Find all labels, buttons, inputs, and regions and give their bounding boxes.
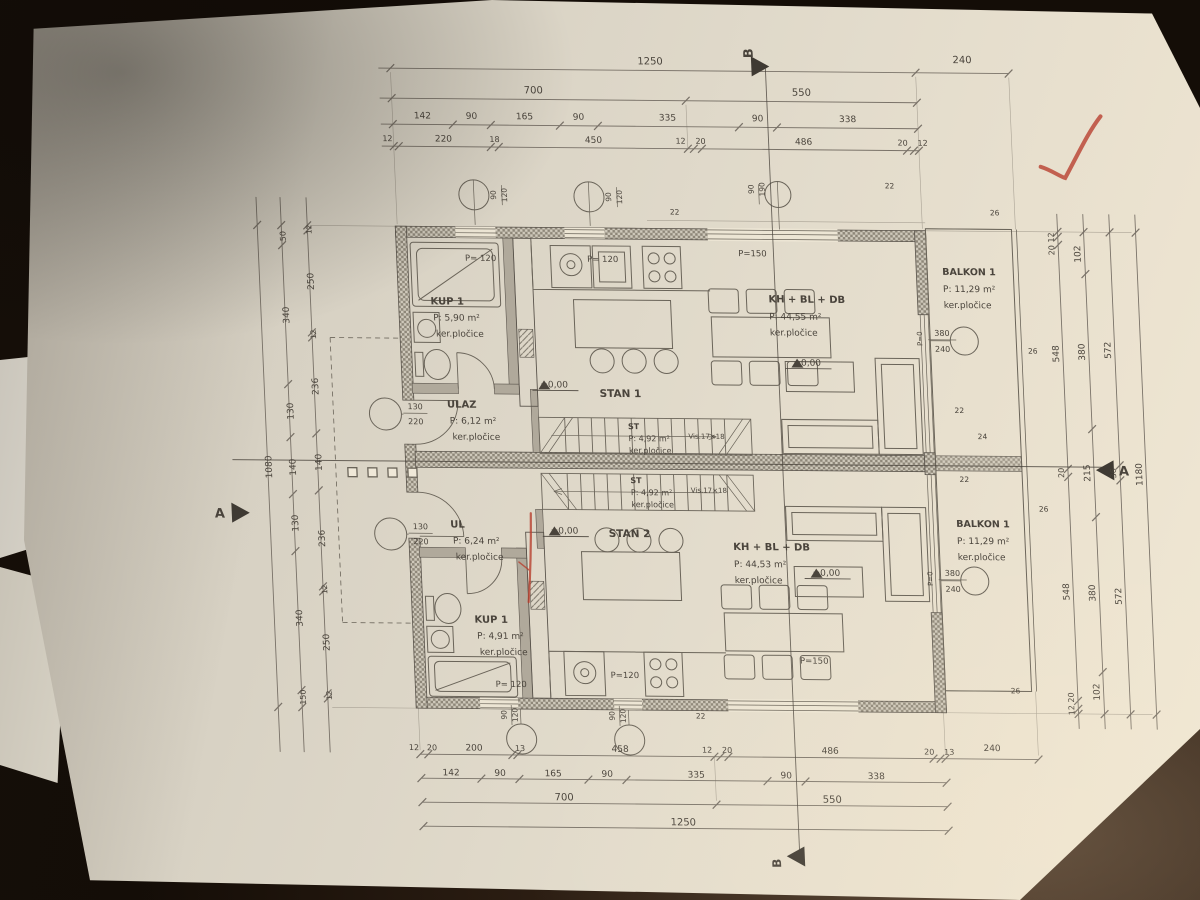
annotation-86: 90 <box>607 711 616 721</box>
annotation-63: 12 <box>325 690 334 700</box>
annotation-43: 20 <box>1057 468 1066 478</box>
annotation-120: ker.pločice <box>943 300 992 311</box>
annotation-72: P= 120 <box>465 254 497 264</box>
annotation-91: 220 <box>413 537 429 546</box>
annotation-37: 338 <box>868 772 886 782</box>
annotation-114: STAN 1 <box>599 388 641 400</box>
annotation-109: P: 5,90 m² <box>433 313 480 323</box>
annotation-78: 90 <box>489 190 498 200</box>
annotation-127: ker.pločice <box>631 499 674 509</box>
annotation-76: P=120 <box>610 671 639 681</box>
annotation-51: 572 <box>1103 342 1114 359</box>
annotation-22: 200 <box>465 744 483 754</box>
floor-plan-drawing: 1250240700550142901659033590338122201845… <box>0 0 1200 900</box>
annotation-133: KH + BL + DB <box>733 542 810 554</box>
annotation-98: 22 <box>670 208 680 217</box>
annotation-6: 165 <box>516 112 534 122</box>
annotation-79: 120 <box>500 188 510 203</box>
annotation-66: 130 <box>286 402 297 420</box>
annotation-3: 550 <box>792 88 812 99</box>
annotation-117: ker.pločice <box>770 327 819 338</box>
annotation-50: 102 <box>1092 683 1103 700</box>
annotation-57: 12 <box>309 329 318 339</box>
annotation-55: 12 <box>304 224 313 234</box>
annotation-64: 50 <box>278 231 287 241</box>
annotation-104: 22 <box>959 475 969 484</box>
annotation-92: 380 <box>934 329 950 338</box>
annotation-0: 1250 <box>637 56 663 67</box>
annotation-84: 90 <box>499 710 508 720</box>
annotation-140: P: 11,29 m² <box>957 537 1010 547</box>
annotation-80: 90 <box>604 192 613 202</box>
annotation-107: 26 <box>1011 686 1021 695</box>
annotation-143: ±0,00 <box>793 359 821 369</box>
annotation-144: ±0,00 <box>551 526 579 536</box>
annotation-14: 450 <box>585 136 603 146</box>
annotation-88: 130 <box>407 402 423 411</box>
annotation-56: 250 <box>306 272 317 290</box>
annotation-12: 220 <box>435 135 453 145</box>
annotation-123: ker.pločice <box>629 445 672 455</box>
annotation-47: 380 <box>1077 343 1088 361</box>
annotation-58: 236 <box>311 377 322 395</box>
annotation-61: 12 <box>320 584 329 594</box>
annotation-59: 140 <box>314 453 325 471</box>
annotation-73: P= 120 <box>587 255 619 265</box>
annotation-48: 215 <box>1083 464 1094 481</box>
annotation-119: P: 11,29 m² <box>943 285 996 295</box>
annotation-99: 22 <box>885 181 895 190</box>
annotation-7: 90 <box>573 113 585 123</box>
annotation-53: 572 <box>1114 588 1125 605</box>
annotation-115: KH + BL + DB <box>768 294 845 306</box>
annotation-9: 90 <box>752 114 764 124</box>
annotation-85: 120 <box>510 708 520 723</box>
annotation-24: 458 <box>611 745 629 755</box>
annotation-16: 20 <box>695 137 706 146</box>
annotation-28: 20 <box>924 748 935 757</box>
annotation-39: 550 <box>823 795 843 806</box>
annotation-34: 90 <box>601 770 613 780</box>
annotation-137: P: 4,91 m² <box>477 632 524 642</box>
annotation-77: P=150 <box>800 656 829 666</box>
annotation-116: P: 44,55 m² <box>769 312 822 322</box>
annotation-18: 20 <box>897 139 908 148</box>
annotation-62: 250 <box>322 633 333 651</box>
photo-scene: 1250240700550142901659033590338122201845… <box>0 0 1200 900</box>
annotation-4: 142 <box>414 111 432 121</box>
annotation-40: 1250 <box>670 817 696 828</box>
annotation-90: 130 <box>413 522 429 531</box>
annotation-89: 220 <box>408 417 424 426</box>
annotation-13: 18 <box>489 135 500 144</box>
annotation-2: 700 <box>524 85 544 96</box>
annotation-32: 90 <box>494 769 506 779</box>
annotation-10: 338 <box>839 115 857 125</box>
annotation-87: 120 <box>618 709 628 724</box>
annotation-103: 24 <box>977 432 987 441</box>
floor-plan-svg: 1250240700550142901659033590338122201845… <box>0 0 1200 900</box>
annotation-15: 12 <box>675 137 686 146</box>
annotation-105: 26 <box>1039 505 1049 514</box>
dimension-lines <box>246 63 1166 837</box>
annotation-38: 700 <box>554 792 574 803</box>
annotation-46: 102 <box>1073 245 1084 262</box>
annotation-112: P: 6,12 m² <box>450 417 497 427</box>
annotation-126: P: 4,92 m² <box>631 488 673 497</box>
annotation-20: 12 <box>409 743 420 752</box>
annotation-145: ±0,00 <box>812 569 840 579</box>
annotation-67: 140 <box>288 458 299 476</box>
annotation-42: 548 <box>1051 345 1062 363</box>
annotation-35: 335 <box>687 770 705 780</box>
annotation-146: B <box>742 48 757 58</box>
annotation-81: 120 <box>615 190 625 205</box>
annotation-94: 380 <box>945 569 961 578</box>
annotation-74: P=150 <box>738 249 767 259</box>
annotation-65: 340 <box>282 306 293 324</box>
paper-sheet: 1250240700550142901659033590338122201845… <box>0 0 1200 900</box>
annotation-141: ker.pločice <box>958 552 1007 563</box>
annotation-124: Vis.17×18 <box>688 433 724 441</box>
annotation-139: BALKON 1 <box>956 519 1010 530</box>
annotation-44: 548 <box>1062 583 1073 601</box>
annotation-121: ST <box>628 422 640 431</box>
annotation-52: 36 <box>1109 468 1118 478</box>
annotation-75: P= 120 <box>495 680 527 690</box>
annotation-113: ker.pločice <box>452 432 501 443</box>
annotation-26: 20 <box>722 746 733 755</box>
annotation-33: 165 <box>544 769 562 779</box>
annotation-106: 22 <box>696 712 706 721</box>
annotation-149: A <box>1119 464 1130 479</box>
annotation-118: BALKON 1 <box>942 267 996 278</box>
annotation-17: 486 <box>795 138 813 148</box>
annotation-41: 20 12 <box>1047 232 1057 255</box>
annotation-95: 240 <box>945 585 961 594</box>
annotation-69: 340 <box>295 609 306 627</box>
annotation-19: 12 <box>917 139 928 148</box>
annotation-108: KUP 1 <box>430 296 464 307</box>
annotation-30: 240 <box>983 744 1001 754</box>
extension-lines <box>304 71 1156 804</box>
annotation-142: ±0,00 <box>540 380 568 390</box>
annotation-36: 90 <box>780 771 792 781</box>
annotation-132: STAN 2 <box>608 528 650 540</box>
annotation-23: 13 <box>515 744 526 753</box>
annotation-147: B <box>770 859 784 868</box>
annotation-1: 240 <box>952 55 972 66</box>
annotation-5: 90 <box>466 112 478 122</box>
annotation-31: 142 <box>442 768 460 778</box>
annotation-83: 190 <box>757 182 767 197</box>
annotation-136: KUP 1 <box>474 615 508 626</box>
annotation-122: P: 4,92 m² <box>628 434 670 443</box>
annotation-97: P=0 <box>926 571 935 586</box>
annotation-71: 1080 <box>264 455 275 478</box>
annotation-25: 12 <box>702 746 713 755</box>
annotation-100: 26 <box>990 208 1000 217</box>
annotation-68: 130 <box>291 514 302 532</box>
annotation-8: 335 <box>659 113 677 123</box>
annotation-70: 150 <box>298 689 308 704</box>
annotation-27: 486 <box>821 747 839 757</box>
annotation-29: 13 <box>944 748 955 757</box>
annotation-49: 380 <box>1088 584 1099 602</box>
annotation-101: 26 <box>1028 347 1038 356</box>
annotation-60: 236 <box>318 529 329 547</box>
annotation-134: P: 44,53 m² <box>734 560 787 570</box>
annotation-128: Vis.17×18 <box>691 487 727 495</box>
annotation-111: ULAZ <box>447 400 477 411</box>
annotation-93: 240 <box>935 345 951 354</box>
annotation-130: P: 6,24 m² <box>453 537 500 547</box>
annotation-110: ker.pločice <box>436 328 485 339</box>
annotation-45: 12 20 <box>1067 692 1077 715</box>
annotation-21: 20 <box>427 743 438 752</box>
annotation-102: 22 <box>954 406 964 415</box>
annotation-54: 1180 <box>1135 463 1146 486</box>
annotation-131: ker.pločice <box>455 552 504 563</box>
annotation-148: A <box>214 506 225 521</box>
annotation-135: ker.pločice <box>734 575 783 586</box>
annotation-129: UL <box>450 520 466 531</box>
annotation-125: ST <box>630 476 642 485</box>
annotation-138: ker.pločice <box>480 647 529 658</box>
annotation-11: 12 <box>382 134 393 143</box>
annotation-96: P=0 <box>916 331 925 346</box>
annotation-82: 90 <box>746 184 755 194</box>
